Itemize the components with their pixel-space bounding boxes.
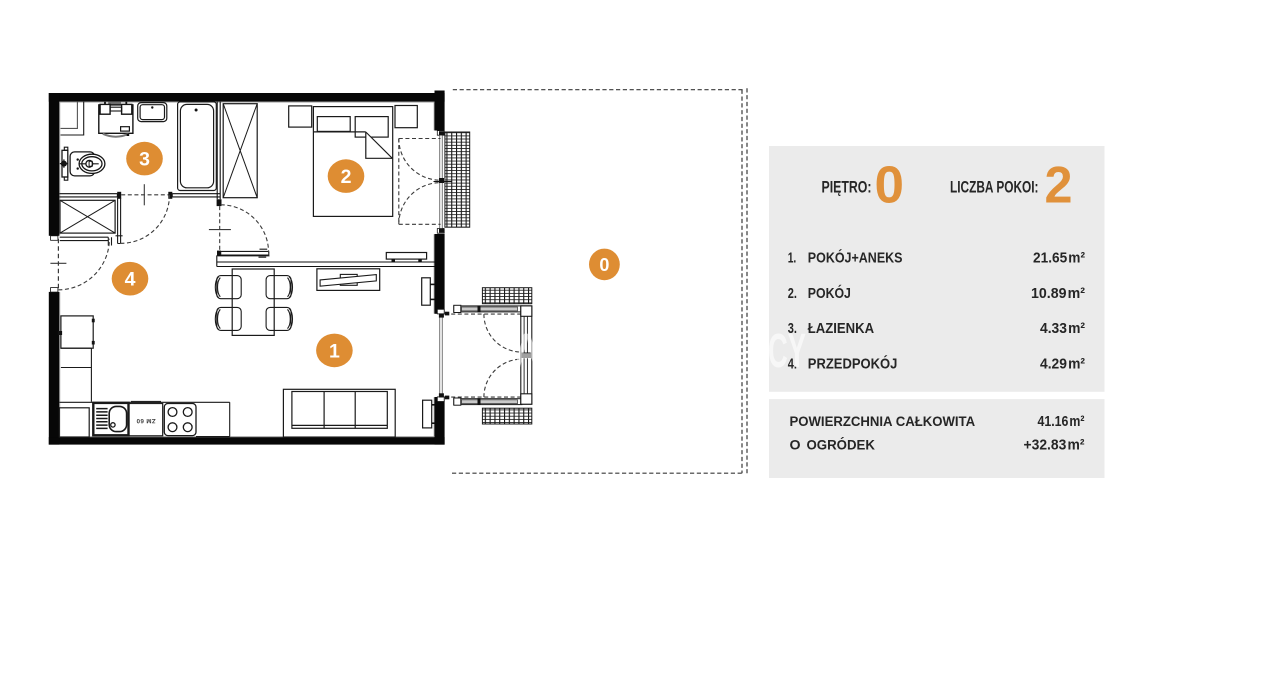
svg-text:CY: CY <box>768 325 806 378</box>
svg-text:ZM 60: ZM 60 <box>136 417 156 424</box>
svg-text:POKÓJ+ANEKS: POKÓJ+ANEKS <box>808 249 903 267</box>
svg-text:4.33 m²: 4.33 m² <box>1040 320 1085 337</box>
svg-text:POKÓJ: POKÓJ <box>808 284 851 302</box>
svg-text:0: 0 <box>599 255 609 275</box>
svg-text:2.: 2. <box>788 285 797 302</box>
svg-text:+32.83 m²: +32.83 m² <box>1024 437 1085 454</box>
svg-text:O: O <box>790 438 801 454</box>
svg-text:10.89 m²: 10.89 m² <box>1031 285 1085 302</box>
svg-text:A: A <box>514 325 540 378</box>
svg-text:3: 3 <box>139 149 150 171</box>
svg-text:LICZBA POKOI:: LICZBA POKOI: <box>950 178 1039 196</box>
svg-text:4: 4 <box>125 269 136 291</box>
svg-text:41.16 m²: 41.16 m² <box>1038 413 1085 430</box>
svg-text:0: 0 <box>875 156 905 214</box>
svg-text:PIĘTRO:: PIĘTRO: <box>822 178 872 196</box>
svg-text:4.29 m²: 4.29 m² <box>1040 355 1085 372</box>
svg-text:OGRÓDEK: OGRÓDEK <box>807 436 876 454</box>
svg-text:1: 1 <box>329 340 340 362</box>
svg-text:POWIERZCHNIA CAŁKOWITA: POWIERZCHNIA CAŁKOWITA <box>790 414 976 430</box>
svg-text:2: 2 <box>1045 156 1073 214</box>
svg-text:2: 2 <box>341 166 352 188</box>
svg-text:PRZEDPOKÓJ: PRZEDPOKÓJ <box>808 354 898 372</box>
svg-text:1.: 1. <box>788 250 797 267</box>
svg-text:21.65 m²: 21.65 m² <box>1033 250 1085 267</box>
svg-text:ŁAZIENKA: ŁAZIENKA <box>808 320 874 337</box>
